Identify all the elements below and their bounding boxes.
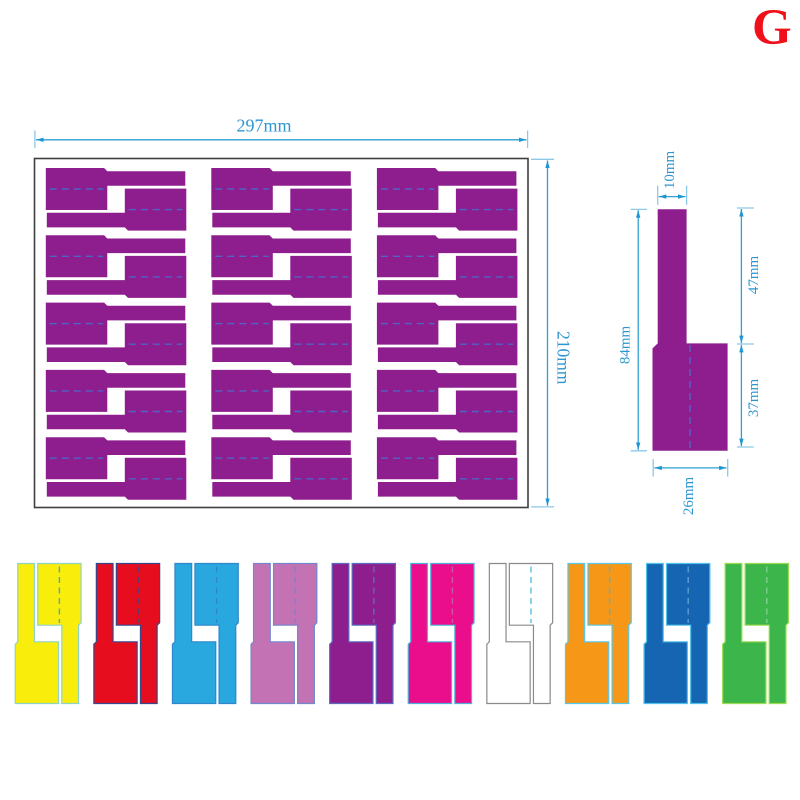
svg-text:26mm: 26mm	[681, 477, 697, 516]
svg-text:84mm: 84mm	[618, 326, 634, 365]
svg-text:47mm: 47mm	[746, 256, 762, 295]
svg-text:10mm: 10mm	[662, 151, 678, 190]
svg-text:297mm: 297mm	[236, 116, 291, 136]
svg-text:G: G	[752, 0, 792, 56]
svg-text:210mm: 210mm	[554, 331, 574, 385]
svg-text:37mm: 37mm	[746, 379, 762, 418]
